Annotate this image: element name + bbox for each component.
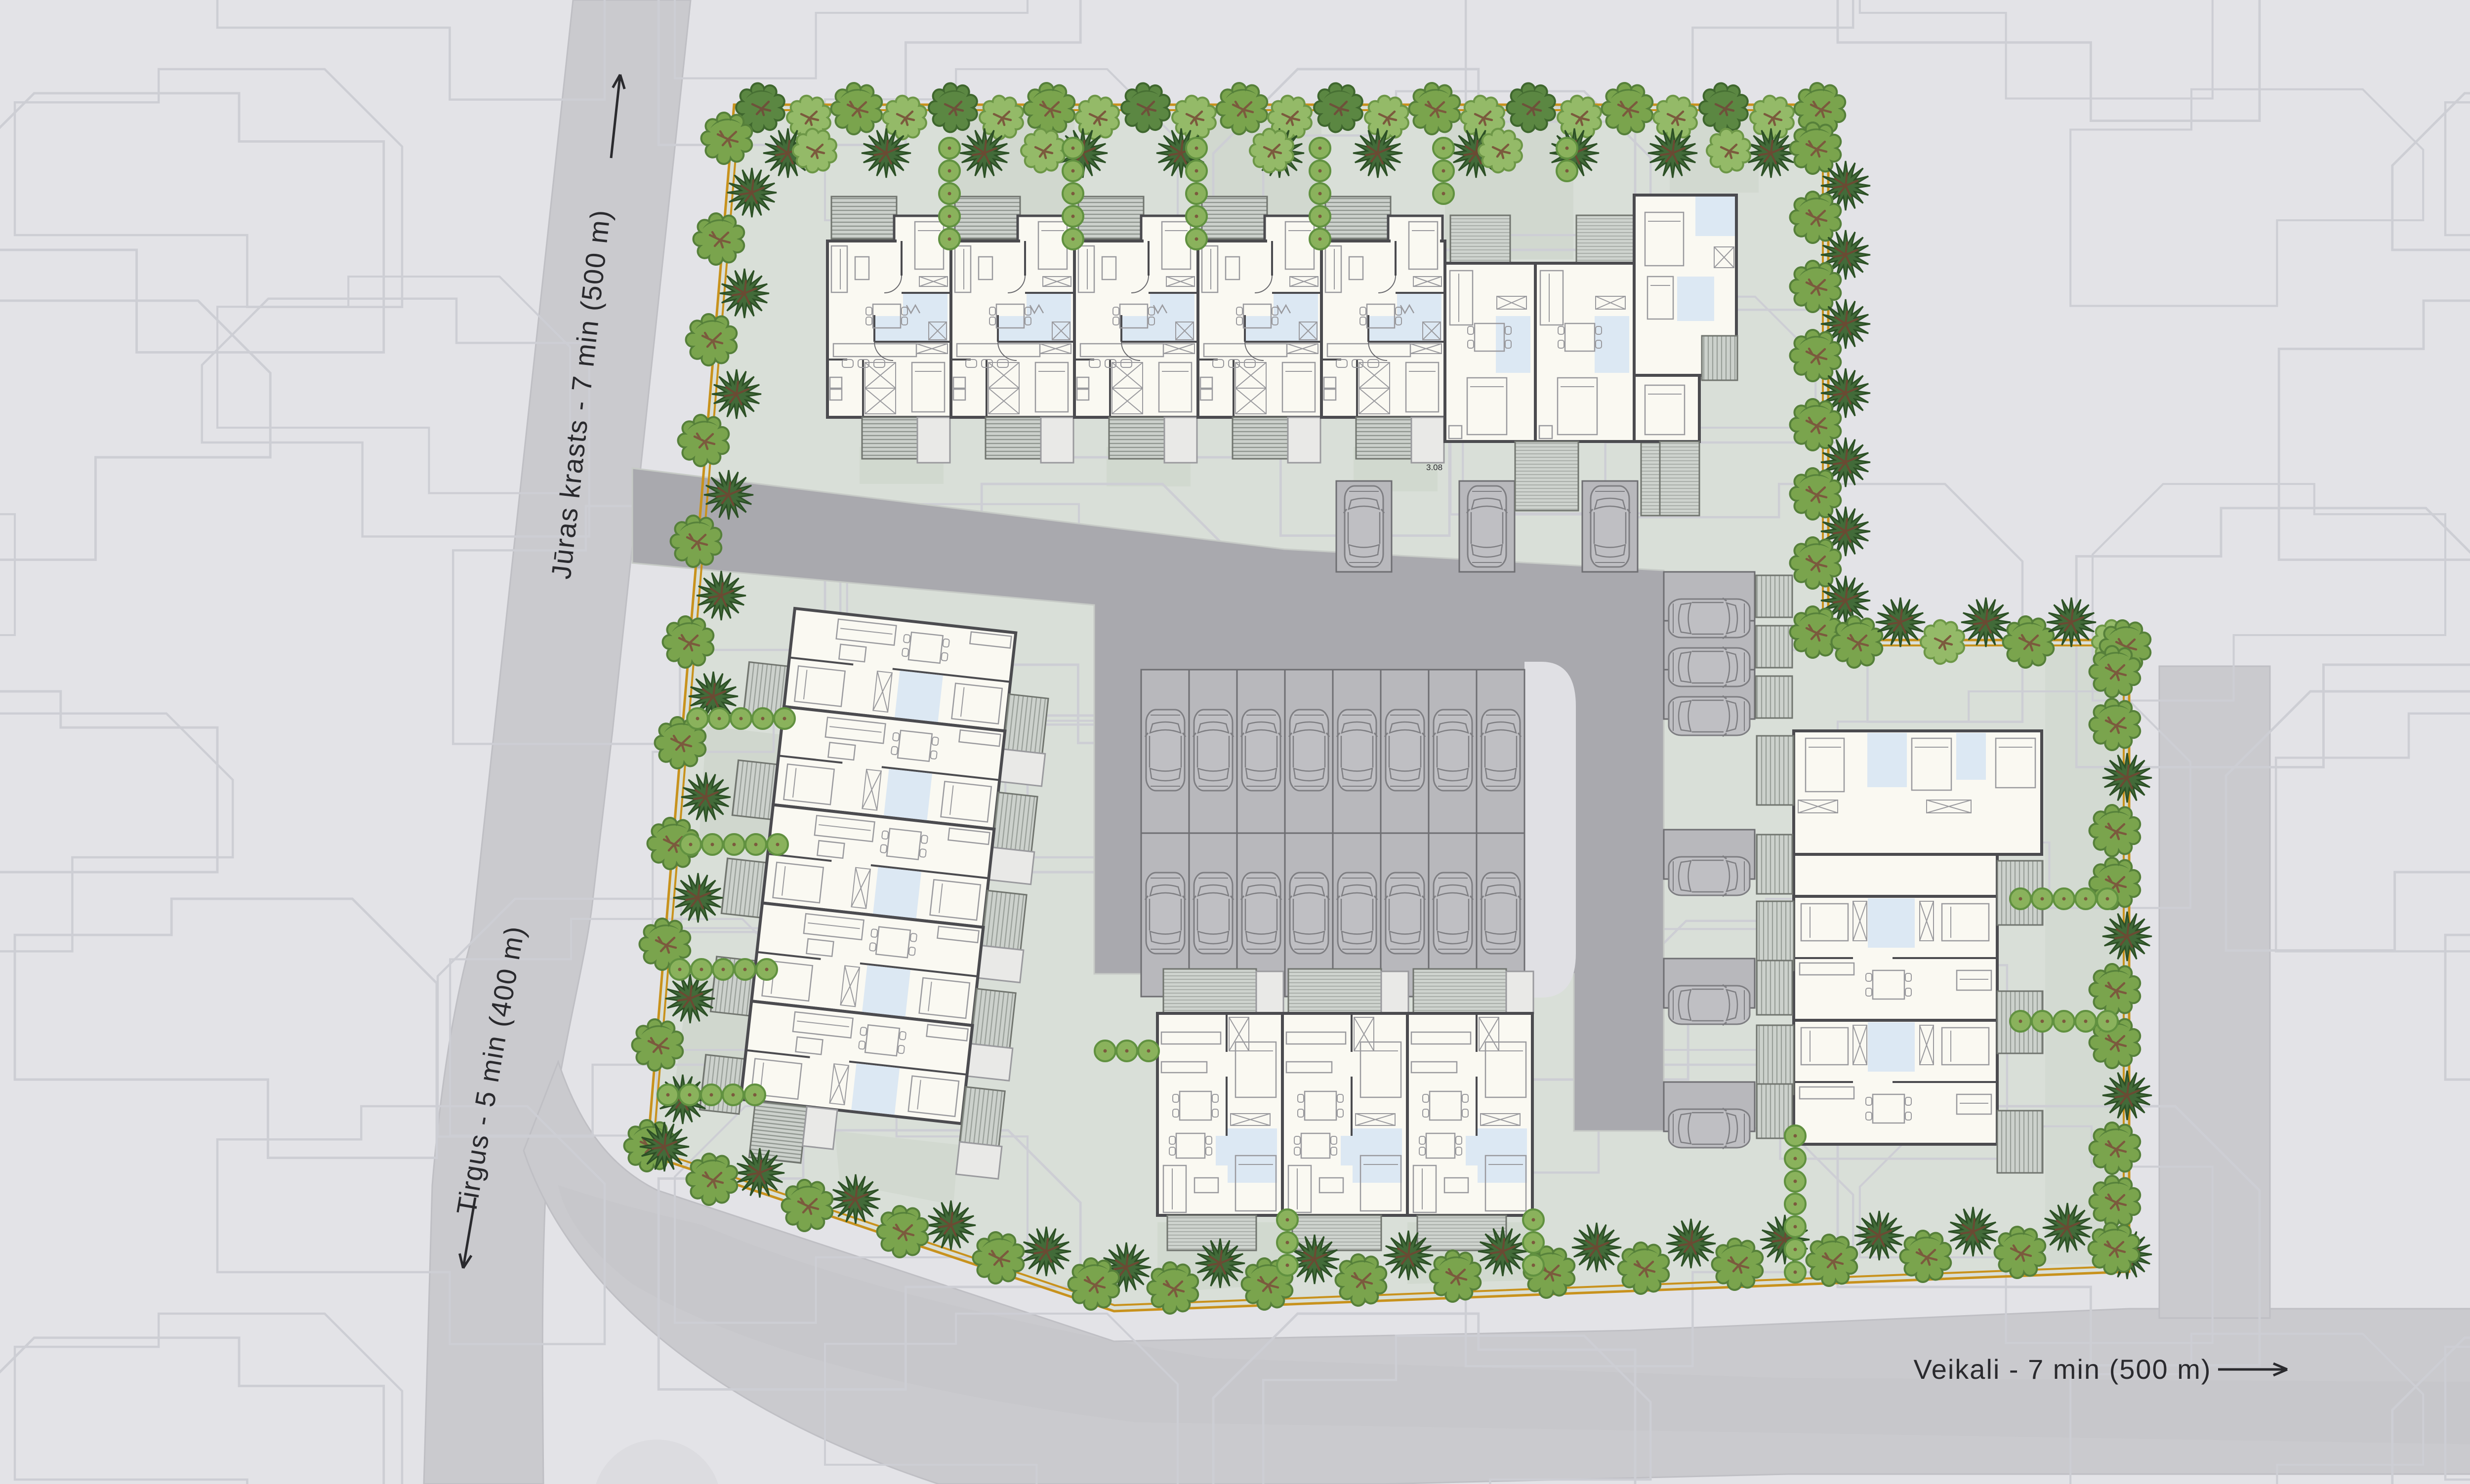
svg-text:Veikali - 7 min (500 m): Veikali - 7 min (500 m) (1913, 1354, 2211, 1385)
svg-text:3.08: 3.08 (1426, 463, 1442, 472)
